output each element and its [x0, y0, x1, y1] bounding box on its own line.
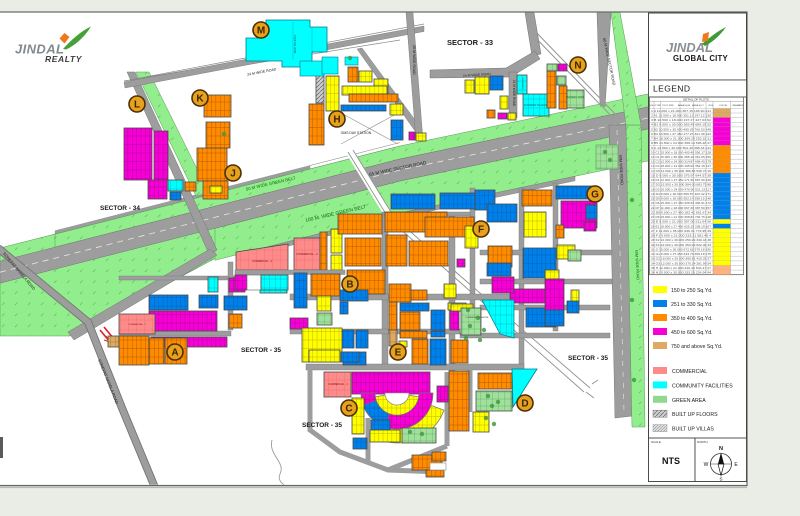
svg-text:GMS DAV STATION: GMS DAV STATION: [341, 131, 372, 135]
svg-text:SECTOR - 35: SECTOR - 35: [302, 422, 342, 429]
svg-text:N: N: [719, 446, 723, 452]
svg-text:20 D5 9.000 x 18.000 552.14: 20 D5 9.000 x 18.000 552.14 358.15 148: [651, 198, 712, 201]
svg-text:COMMERCIAL: COMMERCIAL: [672, 369, 707, 375]
svg-text:14 C5 11.000 x 35.000 396.8: 14 C5 11.000 x 35.000 396.86 549.73 19: [651, 170, 712, 173]
svg-text:27 F 11.000 x 35.000 636.31: 27 F 11.000 x 35.000 636.31 772.95 39: [651, 230, 712, 233]
svg-text:7 B4 18.000 x 21.000 309.29: 7 B4 18.000 x 21.000 309.29 252.32 31: [651, 138, 712, 141]
svg-text:30 F3 12.000 x 30.000 353.0: 30 F3 12.000 x 30.000 353.09 522.46 33: [651, 244, 712, 247]
svg-text:A: A: [171, 347, 178, 358]
svg-text:33 G2 18.000 x 30.000 365.8: 33 G2 18.000 x 30.000 365.81 415.35 27: [651, 258, 712, 261]
svg-text:C: C: [345, 403, 352, 414]
svg-text:18 D3 15.000 x 24.000 476.9: 18 D3 15.000 x 24.000 476.90 531.13 117: [651, 188, 712, 191]
svg-text:H: H: [333, 114, 340, 125]
svg-text:G: G: [591, 189, 599, 200]
svg-text:SECTOR - 35: SECTOR - 35: [568, 355, 608, 362]
svg-text:150 to 250 Sq.Yd.: 150 to 250 Sq.Yd.: [671, 288, 713, 294]
svg-text:11 C2 15.000 x 30.000 385.1: 11 C2 15.000 x 30.000 385.18 361.05 150: [651, 156, 712, 159]
svg-text:4 B1 9.000 x 30.000 383.49: 4 B1 9.000 x 30.000 383.49 689.19 32: [651, 124, 712, 127]
svg-text:NORTH: NORTH: [697, 440, 708, 444]
svg-text:SECTOR - 33: SECTOR - 33: [447, 38, 493, 47]
svg-text:SCALE: SCALE: [651, 440, 661, 444]
svg-text:24 D9 15.000 x 21.000 368.8: 24 D9 15.000 x 21.000 368.84 746.76 128: [651, 216, 712, 219]
svg-text:350 to 400 Sq.Yd.: 350 to 400 Sq.Yd.: [671, 316, 713, 322]
svg-text:29 F2 12.000 x 30.000 250.2: 29 F2 12.000 x 30.000 250.29 340.44 38: [651, 239, 712, 242]
svg-text:24 M WIDE ROAD: 24 M WIDE ROAD: [512, 80, 516, 107]
svg-text:251 to 330 Sq.Yd.: 251 to 330 Sq.Yd.: [671, 302, 713, 308]
svg-text:COMMUNITY CENTRE: COMMUNITY CENTRE: [465, 317, 489, 319]
svg-text:34 G3 12.000 x 35.000 370.2: 34 G3 12.000 x 35.000 370.24 281.99 54: [651, 262, 712, 265]
svg-text:D: D: [521, 398, 528, 409]
svg-text:NURSERY SCHOOL: NURSERY SCHOOL: [524, 103, 549, 107]
svg-text:19 D4 9.000 x 18.000 669.57: 19 D4 9.000 x 18.000 669.57 463.42 171: [651, 193, 712, 196]
svg-text:21 D6 15.000 x 27.450 306.5: 21 D6 15.000 x 27.450 306.53 406.91 172: [651, 202, 712, 205]
svg-text:COMMERCIAL - 2: COMMERCIAL - 2: [128, 323, 147, 326]
svg-text:25 E 9.000 x 21.000 397.05: 25 E 9.000 x 21.000 397.05 511.64 36: [651, 221, 712, 224]
svg-text:J: J: [230, 168, 236, 179]
svg-text:COMMERCIAL - 1: COMMERCIAL - 1: [328, 383, 348, 386]
svg-text:M: M: [257, 25, 265, 36]
svg-text:AREA SQ.Y: AREA SQ.Y: [692, 104, 704, 107]
svg-text:26 E1 18.000 x 27.450 625.1: 26 E1 18.000 x 27.450 625.19 338.19 107: [651, 225, 712, 228]
svg-text:32 G1 9.000 x 27.450 644.74: 32 G1 9.000 x 27.450 644.74 659.18 175: [651, 253, 712, 256]
svg-text:B: B: [346, 279, 353, 290]
svg-text:REMARKS: REMARKS: [733, 104, 744, 107]
svg-text:23 D8 9.000 x 27.450 182.42: 23 D8 9.000 x 27.450 182.42 651.67 34: [651, 211, 712, 214]
svg-text:1 A 11.000 x 21.000 367.15: 1 A 11.000 x 21.000 367.15 190.90 211: [651, 110, 712, 113]
svg-text:W: W: [704, 462, 709, 468]
svg-text:10 C1 15.000 x 18.000 460.4: 10 C1 15.000 x 18.000 460.40 556.17 128: [651, 151, 712, 154]
svg-text:E: E: [395, 347, 402, 358]
svg-text:16 D1 12.000 x 27.450 171.5: 16 D1 12.000 x 27.450 171.56 587.66 196: [651, 179, 712, 182]
svg-text:N: N: [574, 60, 581, 71]
svg-text:BUILT UP FLOORS: BUILT UP FLOORS: [672, 412, 718, 418]
svg-text:15 D 9.000 x 30.000 379.97: 15 D 9.000 x 30.000 379.97 644.57 39: [651, 175, 712, 178]
svg-text:PLOT SIZE: PLOT SIZE: [662, 105, 674, 107]
svg-text:36 H1 9.000 x 30.000 233.20: 36 H1 9.000 x 30.000 233.20 224.94 94: [651, 272, 712, 275]
svg-text:12 C3 12.000 x 24.000 314.8: 12 C3 12.000 x 24.000 314.87 668.40 179: [651, 161, 712, 164]
svg-text:BUILT UP VILLAS: BUILT UP VILLAS: [672, 427, 714, 433]
svg-text:17 D2 13.500 x 30.000 584.0: 17 D2 13.500 x 30.000 584.00 683.75 88: [651, 184, 712, 187]
svg-text:F: F: [478, 224, 484, 235]
svg-text:13 C4 18.000 x 21.000 195.0: 13 C4 18.000 x 21.000 195.02 352.16 127: [651, 165, 712, 168]
svg-text:L: L: [134, 99, 140, 110]
svg-text:26 M WIDE ROAD: 26 M WIDE ROAD: [412, 45, 416, 75]
svg-text:5 B2 10.500 x 35.000 495.09: 5 B2 10.500 x 35.000 495.09 766.53 148: [651, 128, 712, 131]
svg-text:S: S: [719, 477, 722, 482]
svg-text:750 and above Sq.Yd.: 750 and above Sq.Yd.: [671, 344, 722, 350]
svg-text:6 B3 13.500 x 27.450 177.27: 6 B3 13.500 x 27.450 177.27 301.49 143: [651, 133, 712, 136]
svg-text:LEGEND: LEGEND: [653, 84, 690, 94]
svg-text:COMMUNITY FACILITIES: COMMUNITY FACILITIES: [672, 383, 733, 389]
svg-text:8 B5 13.500 x 24.000 458.14: 8 B5 13.500 x 24.000 458.14 596.48 27: [651, 142, 712, 145]
svg-text:K: K: [196, 93, 204, 104]
svg-text:SECTOR - 34: SECTOR - 34: [100, 205, 140, 212]
svg-text:35 H 12.000 x 21.000 210.46: 35 H 12.000 x 21.000 210.46 544.47 27: [651, 267, 712, 270]
svg-text:3 B 10.500 x 18.000 197.27: 3 B 10.500 x 18.000 197.27 427.63 62: [651, 119, 712, 122]
svg-text:REALTY: REALTY: [45, 54, 83, 64]
svg-text:AREA SQ.M: AREA SQ.M: [678, 104, 690, 107]
svg-text:SECTOR - 35: SECTOR - 35: [241, 347, 281, 354]
svg-text:MED SCHOOL: MED SCHOOL: [293, 34, 297, 53]
svg-text:450 to 600 Sq.Yd.: 450 to 600 Sq.Yd.: [671, 330, 713, 336]
svg-text:2 A1 13.500 x 18.000 351.13: 2 A1 13.500 x 18.000 351.13 197.12 130: [651, 114, 712, 117]
svg-text:NTS: NTS: [662, 456, 680, 466]
svg-text:COMMERCIAL - 4: COMMERCIAL - 4: [252, 260, 272, 263]
svg-text:GREEN AREA: GREEN AREA: [672, 398, 706, 404]
svg-text:COLOR: COLOR: [719, 105, 727, 107]
svg-text:31 G 15.000 x 30.000 672.62: 31 G 15.000 x 30.000 672.62 579.18 190: [651, 248, 712, 251]
svg-text:NURSERY: NURSERY: [521, 79, 523, 90]
svg-text:COMMERCIAL - 3: COMMERCIAL - 3: [296, 252, 318, 256]
svg-text:9 C 13.500 x 30.000 501.40: 9 C 13.500 x 30.000 501.40 398.33 141: [651, 147, 712, 150]
svg-text:28 F1 9.000 x 21.000 233.21: 28 F1 9.000 x 21.000 233.21 581.45 4: [651, 235, 712, 238]
svg-text:GLOBAL CITY: GLOBAL CITY: [673, 54, 729, 63]
svg-text:22 D7 11.000 x 18.000 667.3: 22 D7 11.000 x 18.000 667.36 387.50 157: [651, 207, 712, 210]
svg-text:NURSERY PARK: NURSERY PARK: [566, 96, 585, 99]
